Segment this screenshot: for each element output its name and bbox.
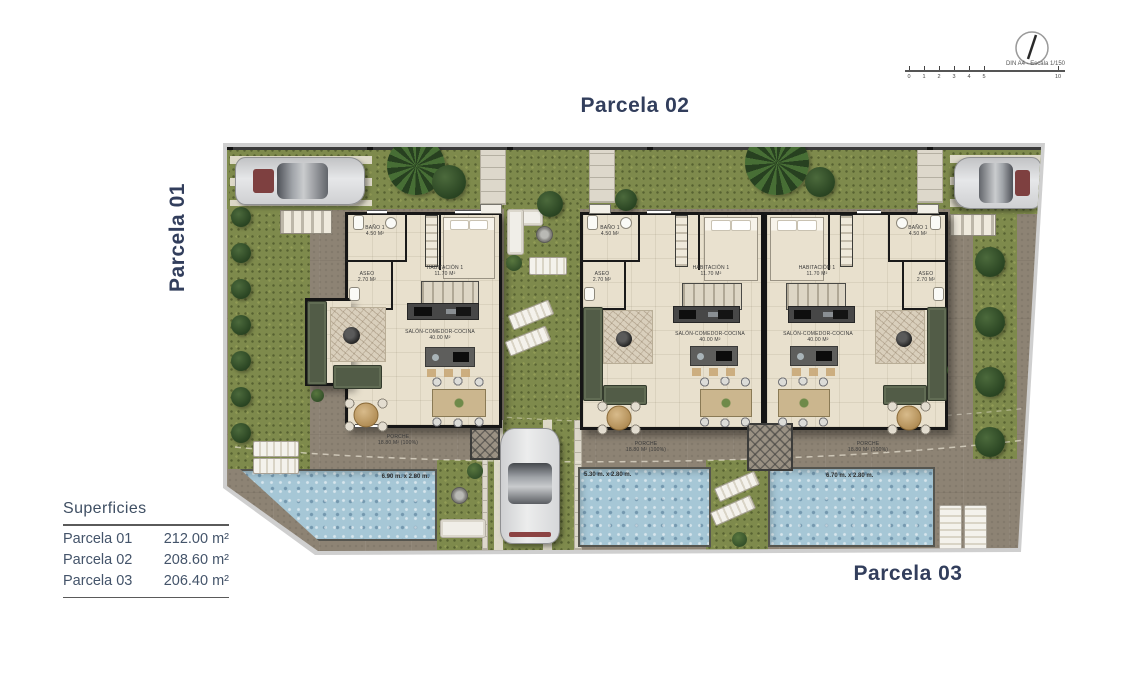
sun-lounger [253, 441, 299, 457]
interior-wall [439, 212, 441, 270]
dining-table [695, 377, 755, 427]
parcela-03-title: Parcela 03 [828, 562, 988, 586]
sofa [927, 307, 947, 401]
scale-tick-label: 1 [919, 74, 929, 80]
legend-row-value: 208.60 m² [164, 552, 229, 568]
scale-tick [924, 66, 925, 70]
entry-door [480, 204, 502, 214]
tree [231, 387, 251, 407]
tree [975, 247, 1005, 277]
scale-tick-label: 3 [949, 74, 959, 80]
tree [231, 207, 251, 227]
island-stools [427, 369, 473, 377]
tree [231, 315, 251, 335]
pergola-trellis [470, 428, 500, 460]
scale-tick [984, 66, 985, 70]
scale-tick [1058, 66, 1059, 70]
kitchen-island [790, 346, 838, 366]
legend-row: Parcela 02 208.60 m² [63, 552, 229, 568]
parked-car [235, 157, 365, 205]
plant [311, 389, 324, 402]
boundary-wall [227, 147, 1041, 150]
scale-bar [905, 70, 1065, 72]
scale-tick [939, 66, 940, 70]
car-seats [1015, 170, 1030, 196]
island-stools [792, 368, 836, 376]
dining-table [427, 377, 489, 427]
car-roof [979, 163, 1013, 203]
scale-tick [909, 66, 910, 70]
porche-label: PORCHE18.80 m² (100%) [615, 441, 677, 454]
tree [537, 191, 563, 217]
car-roof [508, 463, 552, 504]
legend-title: Superficies [63, 500, 233, 518]
stepping-stone [451, 487, 468, 504]
legend-row-label: Parcela 02 [63, 552, 132, 568]
room-label-habitacion: HABITACIÓN 111.70 m² [785, 265, 849, 278]
legend-row-label: Parcela 01 [63, 531, 132, 547]
parcela-02-title: Parcela 02 [545, 94, 725, 118]
tree [231, 351, 251, 371]
pool-dimensions: 6.70 m. x 2.80 m. [826, 473, 873, 479]
room-label-salon: SALÓN-COMEDOR-COCINA40.00 m² [405, 329, 475, 342]
coffee-table [616, 331, 632, 347]
porch-table [596, 400, 642, 436]
porche-label: PORCHE18.80 m² (100%) [367, 434, 429, 447]
kitchen-island [690, 346, 738, 366]
room-label-bano: BAÑO 14.50 m² [890, 225, 946, 238]
room-label-aseo: ASEO2.70 m² [345, 271, 389, 284]
pool-dimensions: 5.30 m. x 2.80 m. [584, 472, 631, 478]
scale-tick-label: 10 [1053, 74, 1063, 80]
sofa [333, 365, 382, 389]
tree [805, 167, 835, 197]
car-tail [509, 532, 551, 538]
sun-lounger [964, 505, 987, 551]
porche-label: PORCHE18.80 m² (100%) [837, 441, 899, 454]
sofa [307, 301, 327, 385]
kitchen-counter [407, 303, 479, 320]
shrub [506, 255, 522, 271]
sun-lounger [939, 505, 962, 551]
shrub [467, 463, 483, 479]
scale-tick-label: 0 [904, 74, 914, 80]
outdoor-sofa [440, 519, 486, 538]
room-label-habitacion: HABITACIÓN 111.70 m² [679, 265, 743, 278]
room-label-bano: BAÑO 14.50 m² [582, 225, 638, 238]
shrub [732, 532, 747, 547]
tree [975, 367, 1005, 397]
porch-table [343, 397, 389, 433]
parked-car [500, 428, 560, 544]
scale-tick [969, 66, 970, 70]
car-seats [253, 169, 275, 193]
scale-tick-label: 4 [964, 74, 974, 80]
room-label-bano: BAÑO 14.50 m² [347, 225, 403, 238]
parked-car [954, 157, 1042, 209]
scale-tick-label: 5 [979, 74, 989, 80]
outdoor-sofa [507, 209, 524, 255]
wardrobe [840, 215, 853, 267]
interior-wall [902, 260, 904, 310]
interior-wall [580, 260, 640, 262]
legend-row-value: 212.00 m² [164, 531, 229, 547]
room-label-salon: SALÓN-COMEDOR-COCINA40.00 m² [783, 331, 853, 344]
legend-rule [63, 524, 229, 526]
scale-tick-label: 2 [934, 74, 944, 80]
site-plan-canvas: DIN A4 - Escala 1/150 0 1 2 3 4 5 10 Par… [0, 0, 1125, 678]
window [647, 210, 671, 214]
sofa [583, 307, 603, 401]
porch-table [886, 400, 932, 436]
interior-wall [828, 212, 830, 270]
kitchen-counter [788, 306, 855, 323]
scale-tick [954, 66, 955, 70]
island-stools [692, 368, 736, 376]
superficies-legend: Superficies Parcela 01 212.00 m² Parcela… [63, 500, 233, 598]
toilet [349, 287, 360, 301]
parcela-01-title: Parcela 01 [166, 140, 190, 292]
legend-rule [63, 597, 229, 599]
interior-wall [391, 260, 393, 310]
window [367, 210, 387, 214]
tree [975, 427, 1005, 457]
toilet [584, 287, 595, 301]
interior-wall [345, 260, 407, 262]
interior-wall [698, 212, 700, 270]
interior-wall [888, 260, 948, 262]
entry-door [917, 204, 939, 214]
site-area: 6.90 m. x 2.80 m. 5.30 m. x 2.80 m. 6.70… [227, 147, 1041, 551]
kitchen-counter [673, 306, 740, 323]
coffee-table [343, 327, 360, 344]
interior-wall [624, 260, 626, 310]
room-label-aseo: ASEO2.70 m² [580, 271, 624, 284]
coffee-table [896, 331, 912, 347]
tree [231, 279, 251, 299]
wardrobe [675, 215, 688, 267]
tree [615, 189, 637, 211]
room-label-aseo: ASEO2.70 m² [904, 271, 948, 284]
pool-steps [232, 499, 244, 529]
scale-note: DIN A4 - Escala 1/150 [975, 61, 1065, 67]
room-label-salon: SALÓN-COMEDOR-COCINA40.00 m² [675, 331, 745, 344]
toilet [933, 287, 944, 301]
interior-wall [638, 212, 640, 262]
pool-parcela-02: 5.30 m. x 2.80 m. [578, 467, 711, 547]
pergola-trellis [747, 423, 793, 471]
tree [975, 307, 1005, 337]
legend-row-value: 206.40 m² [164, 573, 229, 589]
room-label-habitacion: HABITACIÓN 111.70 m² [413, 265, 477, 278]
palm-tree [745, 131, 809, 195]
legend-row-label: Parcela 03 [63, 573, 132, 589]
legend-row: Parcela 03 206.40 m² [63, 573, 229, 589]
tree [231, 423, 251, 443]
pool-parcela-03: 6.70 m. x 2.80 m. [768, 467, 935, 547]
tree [432, 165, 466, 199]
tree [231, 243, 251, 263]
interior-wall [405, 212, 407, 262]
sun-lounger [529, 257, 567, 275]
window [857, 210, 881, 214]
legend-row: Parcela 01 212.00 m² [63, 531, 229, 547]
kitchen-island [425, 347, 475, 367]
window [455, 210, 481, 214]
car-roof [277, 163, 328, 200]
dining-table [773, 377, 833, 427]
stepping-stone [536, 226, 553, 243]
wardrobe [425, 215, 438, 267]
sun-lounger [253, 458, 299, 474]
entry-door [589, 204, 611, 214]
pool-dimensions: 6.90 m. x 2.80 m. [382, 474, 429, 480]
